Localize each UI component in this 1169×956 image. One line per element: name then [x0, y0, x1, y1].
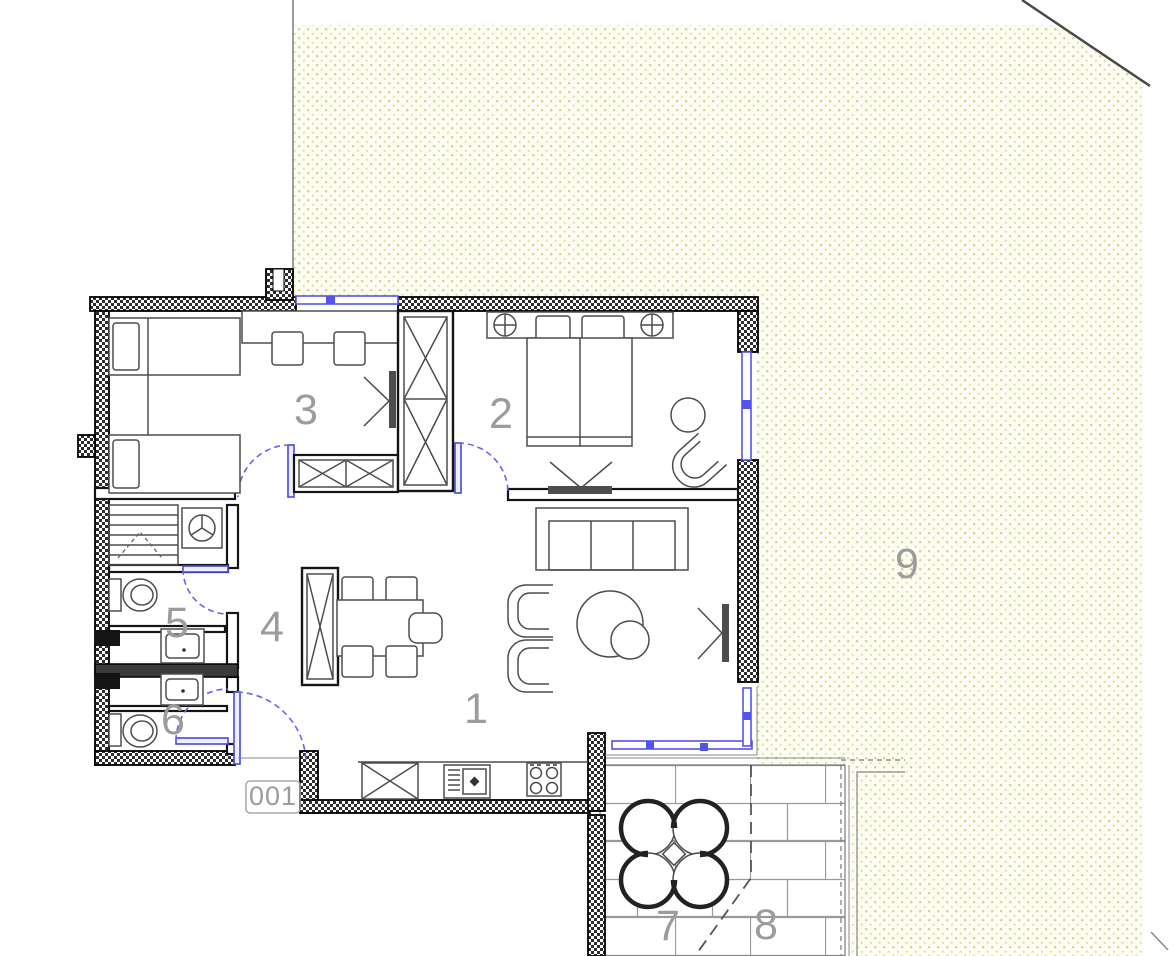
coffee-table-small: [611, 621, 649, 659]
room-label-3: 3: [294, 386, 318, 434]
room-label-9: 9: [895, 540, 919, 588]
room-label-7: 7: [656, 902, 680, 950]
wall-hall-stairs: [227, 505, 238, 568]
window-living-bottom: [612, 741, 752, 749]
room-3-bedroom: [109, 311, 398, 493]
lamp-right: [641, 314, 663, 336]
wall-right-upper: [738, 311, 758, 352]
kitchen: [358, 762, 588, 799]
wall-kitchen-bottom: [300, 800, 590, 813]
dining-chair-5: [409, 613, 442, 643]
room-label-4: 4: [260, 603, 284, 651]
room-label-1: 1: [464, 685, 488, 733]
room-label-2: 2: [489, 390, 513, 438]
floor-plan-svg: 1 2 3 4 5 6 7 8 9 001: [0, 0, 1169, 956]
armchair-2: [508, 640, 553, 692]
side-table: [671, 398, 705, 432]
unit-label: 001: [246, 781, 300, 813]
wall-hall-bath6-upper: [227, 677, 238, 692]
window-room2-tick: [742, 400, 751, 409]
window-living-right-tick: [743, 712, 751, 720]
room-2-bedroom: [487, 312, 727, 495]
window-living-tick2: [700, 743, 708, 751]
stove: [527, 763, 561, 796]
corner-cabinet: [362, 763, 418, 799]
tv-room2: [550, 462, 612, 488]
room-label-8: 8: [754, 901, 778, 949]
wall-kitchen-pier: [588, 733, 605, 811]
tv-room2-base: [548, 486, 612, 494]
wall-top-room2: [398, 297, 758, 311]
door-bath5: [183, 566, 228, 614]
closet-room3: [294, 455, 398, 492]
desk: [242, 311, 398, 343]
desk-chair-2: [334, 332, 365, 365]
washing-machine: [182, 508, 222, 548]
armchair-1: [508, 585, 553, 637]
room-4-dining: [302, 568, 442, 685]
wall-post-sink6: [95, 673, 120, 689]
tv-living: [722, 604, 729, 662]
toilet-6: [109, 714, 157, 747]
wall-post-sink5: [95, 630, 120, 646]
kitchen-sink: [444, 765, 490, 798]
terrace-table-set: [621, 801, 727, 907]
door-room3: [238, 445, 294, 497]
wall-terrace-left: [588, 815, 605, 956]
floor-plan-page: 1 2 3 4 5 6 7 8 9 001: [0, 0, 1169, 956]
chimney-flue: [273, 269, 284, 291]
tv-room3-stand: [364, 377, 389, 426]
tv-room3: [389, 371, 396, 428]
wall-left-pier: [78, 435, 95, 457]
dining-chair-4: [386, 646, 417, 677]
wall-right-mid: [738, 460, 758, 682]
lamp-left: [494, 314, 516, 336]
wall-bottom-bath: [95, 751, 235, 765]
room-label-6: 6: [161, 696, 185, 744]
wall-left: [95, 311, 109, 765]
sideboard: [302, 568, 338, 685]
wardrobe-column: [398, 311, 453, 491]
unit-label-text: 001: [249, 781, 297, 811]
window-room3: [296, 296, 398, 304]
wall-hall-bath5: [227, 613, 238, 668]
room-1-living: [508, 508, 729, 692]
tub-chair-room2: [664, 433, 726, 495]
corner-mark: [1151, 932, 1168, 950]
desk-chair-1: [272, 332, 303, 365]
tv-living-stand: [698, 608, 722, 659]
window-living-tick1: [646, 741, 654, 749]
toilet-5: [109, 579, 157, 611]
stairs-area: [109, 505, 222, 565]
wall-room2-living: [508, 489, 738, 500]
door-room2: [455, 443, 508, 493]
window-room3-tick: [326, 296, 335, 304]
pillow: [113, 323, 139, 370]
room-label-5: 5: [165, 599, 189, 647]
dining-chair-3: [342, 646, 373, 677]
door-entrance: [234, 692, 306, 764]
sofa: [536, 508, 688, 570]
pillow: [113, 440, 139, 488]
